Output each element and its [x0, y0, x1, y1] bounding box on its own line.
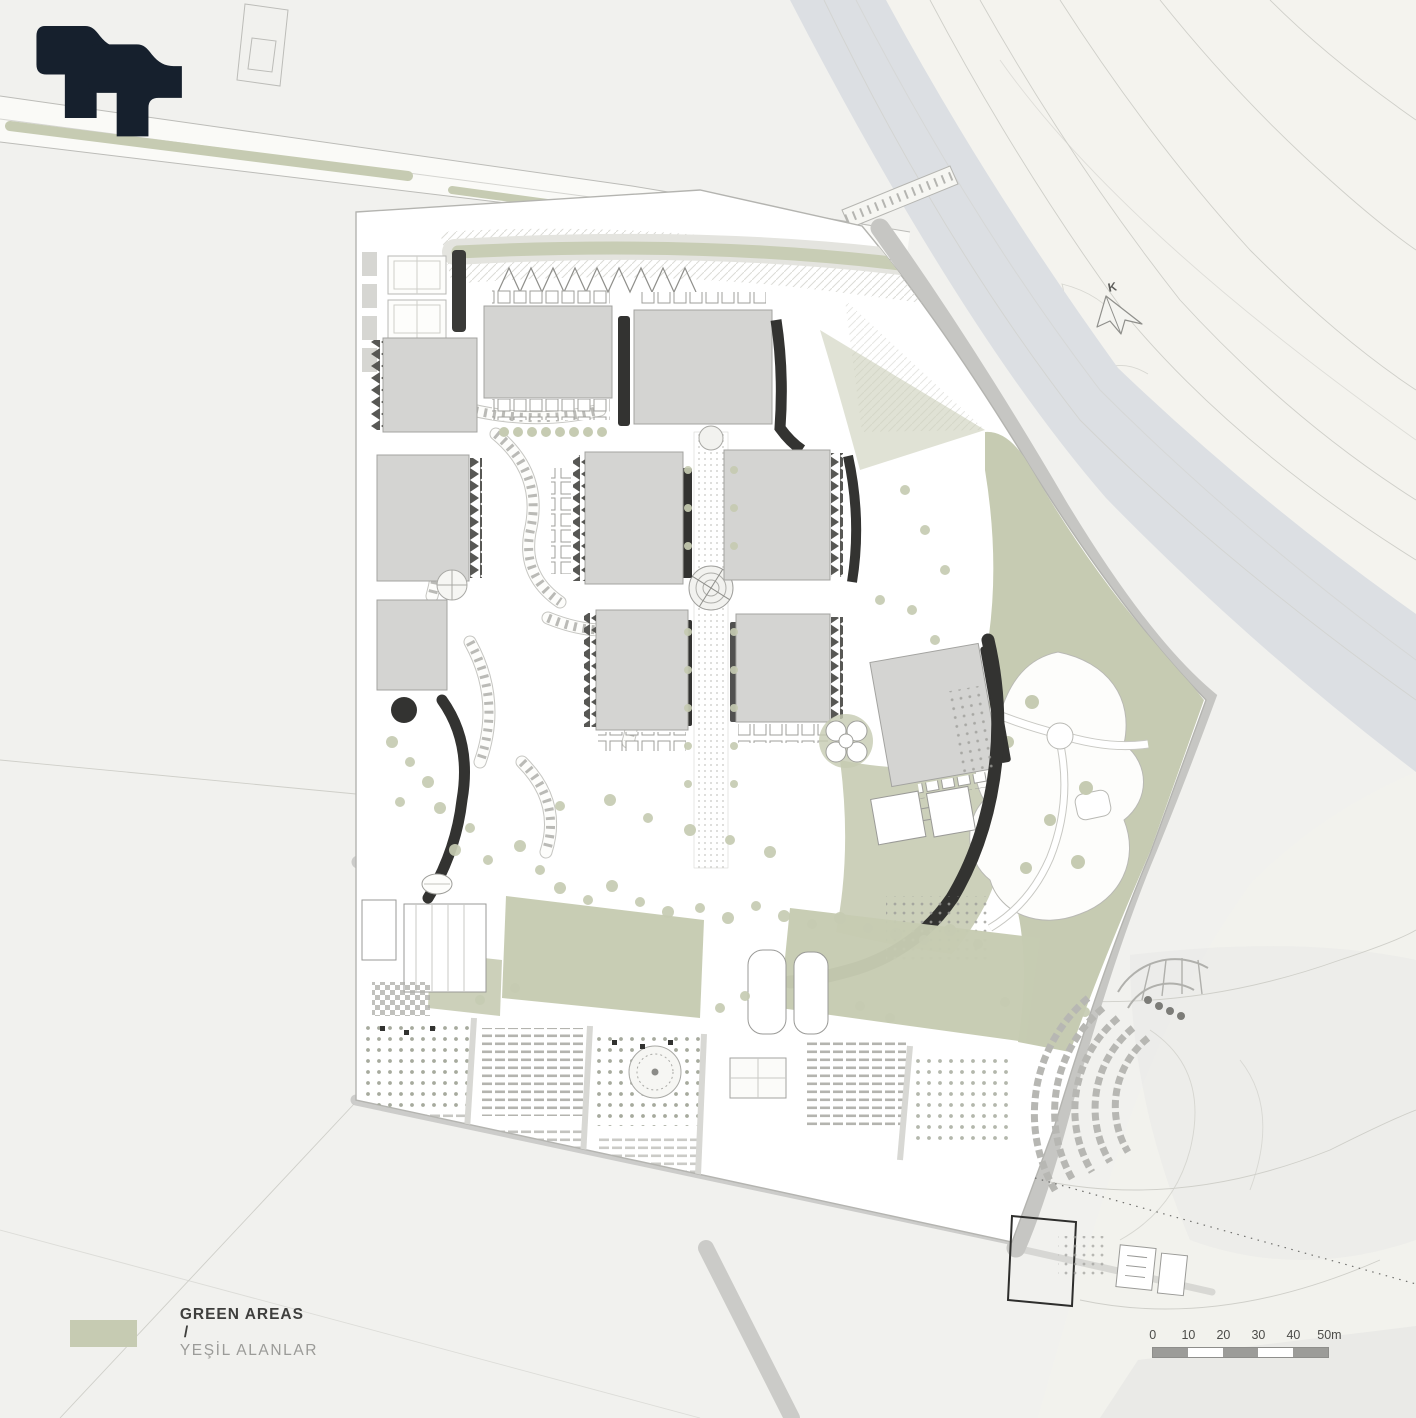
- north-indicator: K: [1094, 280, 1158, 344]
- legend-label-tr: YEŞİL ALANLAR: [180, 1342, 318, 1359]
- scale-bar-strip: [1152, 1347, 1329, 1358]
- logo: [36, 26, 184, 138]
- scale-tick-label: 50m: [1317, 1328, 1341, 1342]
- scale-tick-label: 20: [1216, 1328, 1230, 1342]
- logo-mark-right: [88, 44, 182, 136]
- legend-label-en: GREEN AREAS: [180, 1306, 304, 1323]
- scale-bar: 01020304050m: [1152, 1328, 1352, 1358]
- scale-tick-label: 10: [1181, 1328, 1195, 1342]
- scale-tick-label: 40: [1286, 1328, 1300, 1342]
- site-plan-drawing: [0, 0, 1416, 1418]
- scale-bar-labels: 01020304050m: [1152, 1328, 1352, 1344]
- legend-green-swatch: [70, 1320, 137, 1347]
- site-plan-sheet: K GREEN AREAS / YEŞİL ALANLAR 0102030405…: [0, 0, 1416, 1418]
- scale-tick-label: 30: [1251, 1328, 1265, 1342]
- legend-separator: /: [180, 1324, 193, 1341]
- legend: GREEN AREAS / YEŞİL ALANLAR: [70, 1288, 318, 1378]
- north-arrow-icon: [1094, 292, 1150, 338]
- scale-tick-label: 0: [1149, 1328, 1156, 1342]
